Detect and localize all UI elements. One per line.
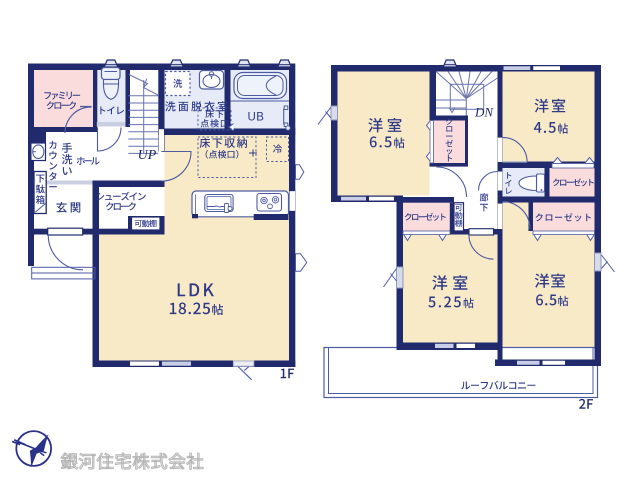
svg-text:UP: UP <box>138 148 157 163</box>
svg-text:UB: UB <box>248 112 265 124</box>
svg-text:DN: DN <box>474 105 494 120</box>
